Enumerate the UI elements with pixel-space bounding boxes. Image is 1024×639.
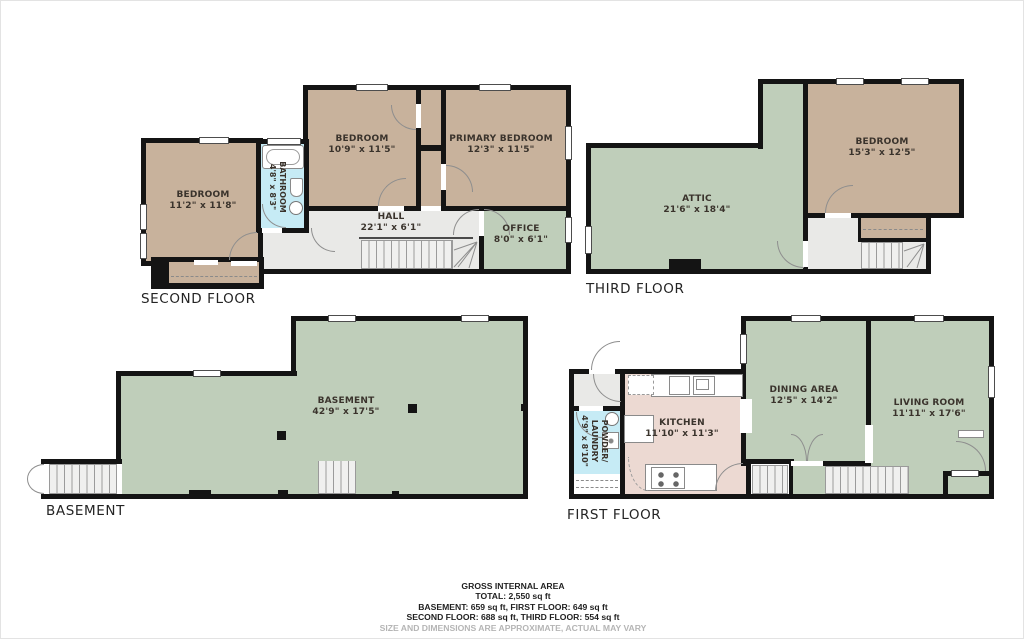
- room-dims: 12'3" x 11'5": [441, 145, 561, 156]
- kitchen-sink-basin: [696, 379, 709, 390]
- room-dims: 21'6" x 18'4": [637, 205, 757, 216]
- window: [914, 315, 944, 322]
- door-gap: [231, 261, 257, 266]
- room-dims: 4'9" x 8'10": [579, 399, 589, 483]
- room-dims: 15'3" x 12'5": [822, 148, 942, 159]
- room-name: BASEMENT: [286, 396, 406, 407]
- hearth: [958, 430, 984, 438]
- window: [140, 204, 147, 230]
- wall-bottom: [789, 494, 869, 499]
- window: [791, 315, 821, 322]
- summary-title: GROSS INTERNAL AREA: [1, 581, 1024, 591]
- room-dims: 11'11" x 17'6": [869, 409, 989, 420]
- room-label-dining-area: DINING AREA 12'5" x 14'2": [744, 385, 864, 407]
- deck-steps: [825, 466, 909, 494]
- column: [408, 404, 417, 413]
- window: [461, 315, 489, 322]
- door-gap: [194, 260, 218, 265]
- room-name: LIVING ROOM: [869, 398, 989, 409]
- summary-second-third: SECOND FLOOR: 688 sq ft, THIRD FLOOR: 55…: [1, 612, 1024, 622]
- bulkhead-door-arc: [27, 464, 44, 479]
- room-name: BEDROOM: [312, 134, 412, 145]
- room-dims: 4'8" x 8'3": [267, 145, 277, 229]
- over-stairs-closet: [858, 218, 926, 242]
- door-gap: [791, 461, 823, 466]
- room-dims: 22'1" x 6'1": [341, 223, 441, 234]
- area-summary: GROSS INTERNAL AREA TOTAL: 2,550 sq ft B…: [1, 581, 1024, 633]
- column: [277, 431, 286, 440]
- room-label-bedroom-middle: BEDROOM 10'9" x 11'5": [312, 134, 412, 156]
- stove: [651, 467, 685, 489]
- room-label-primary-bedroom: PRIMARY BEDROOM 12'3" x 11'5": [441, 134, 561, 156]
- room-name: OFFICE: [471, 224, 571, 235]
- window: [740, 334, 747, 364]
- window: [328, 315, 356, 322]
- room-name: HALL: [341, 212, 441, 223]
- window: [199, 137, 229, 144]
- door-gap: [416, 104, 421, 128]
- room-label-hall: HALL 22'1" x 6'1": [341, 212, 441, 234]
- window: [836, 78, 864, 85]
- chimney: [669, 259, 701, 274]
- dishwasher: [669, 376, 690, 395]
- room-name: PRIMARY BEDROOM: [441, 134, 561, 145]
- door-gap: [825, 213, 851, 218]
- floor-label-second: SECOND FLOOR: [141, 291, 256, 307]
- room-label-basement: BASEMENT 42'9" x 17'5": [286, 396, 406, 418]
- room-label-office: OFFICE 8'0" x 6'1": [471, 224, 571, 246]
- room-name: DINING AREA: [744, 385, 864, 396]
- window: [479, 84, 511, 91]
- floor-label-first: FIRST FLOOR: [567, 507, 661, 523]
- closet-rail-dashed: [171, 276, 257, 277]
- door-gap: [378, 206, 404, 211]
- room-dims: 11'10" x 11'3": [622, 429, 742, 440]
- room-label-bedroom-third: BEDROOM 15'3" x 12'5": [822, 137, 942, 159]
- stairs-bulkhead: [49, 464, 117, 494]
- counter-dashed: [628, 375, 654, 395]
- attic-join-patch: [763, 142, 803, 154]
- stairs-third-floor: [861, 242, 903, 269]
- floor-label-basement: BASEMENT: [46, 503, 125, 519]
- basement-join-patch: [289, 376, 299, 494]
- stairs-winder: [903, 242, 926, 269]
- window: [565, 126, 572, 160]
- stair-railing: [359, 237, 473, 239]
- room-basement-left: [116, 371, 297, 499]
- stairs-hall: [361, 240, 453, 269]
- window: [140, 233, 147, 259]
- room-dims: 12'5" x 14'2": [744, 396, 864, 407]
- wall-tick: [278, 490, 288, 499]
- floor-label-third: THIRD FLOOR: [586, 281, 684, 297]
- room-attic-strip: [758, 79, 808, 149]
- window: [901, 78, 929, 85]
- closet-dashed: [576, 487, 618, 488]
- room-name: KITCHEN: [622, 418, 742, 429]
- window: [356, 84, 388, 91]
- over-stairs-dashed: [863, 229, 923, 230]
- summary-disclaimer: SIZE AND DIMENSIONS ARE APPROXIMATE, ACT…: [1, 623, 1024, 633]
- room-label-living-room: LIVING ROOM 11'11" x 17'6": [869, 398, 989, 420]
- wall-tick: [392, 491, 399, 499]
- room-name: BEDROOM: [822, 137, 942, 148]
- alcove-wall: [943, 471, 948, 499]
- window: [585, 226, 592, 254]
- stairs-first-floor: [752, 465, 788, 494]
- room-name: BATHROOM: [277, 145, 287, 229]
- window: [193, 370, 221, 377]
- room-name: POWDER/ LAUNDRY: [589, 399, 609, 483]
- wall-tick: [189, 490, 211, 499]
- window: [267, 138, 301, 145]
- wall-tick: [521, 404, 528, 411]
- window: [988, 366, 995, 398]
- bulkhead-opening: [117, 464, 122, 494]
- entry-door-arc-exterior: [591, 341, 620, 370]
- room-dims: 10'9" x 11'5": [312, 145, 412, 156]
- room-name: ATTIC: [637, 194, 757, 205]
- window: [951, 470, 979, 477]
- summary-basement-first: BASEMENT: 659 sq ft, FIRST FLOOR: 649 sq…: [1, 602, 1024, 612]
- room-dims: 42'9" x 17'5": [286, 407, 406, 418]
- opening-dining-living: [865, 425, 873, 463]
- room-label-kitchen: KITCHEN 11'10" x 11'3": [622, 418, 742, 440]
- room-label-attic: ATTIC 21'6" x 18'4": [637, 194, 757, 216]
- room-label-bathroom: BATHROOM 4'8" x 8'3": [237, 145, 317, 229]
- room-dims: 8'0" x 6'1": [471, 235, 571, 246]
- stairs-basement: [318, 461, 356, 494]
- door-gap: [421, 206, 441, 211]
- room-label-powder-laundry: POWDER/ LAUNDRY 4'9" x 8'10": [552, 399, 636, 483]
- floor-plan-sheet: BEDROOM 11'2" x 11'8" BATHROOM 4'8" x 8'…: [0, 0, 1024, 639]
- summary-total: TOTAL: 2,550 sq ft: [1, 591, 1024, 601]
- bulkhead-door-arc: [27, 479, 44, 494]
